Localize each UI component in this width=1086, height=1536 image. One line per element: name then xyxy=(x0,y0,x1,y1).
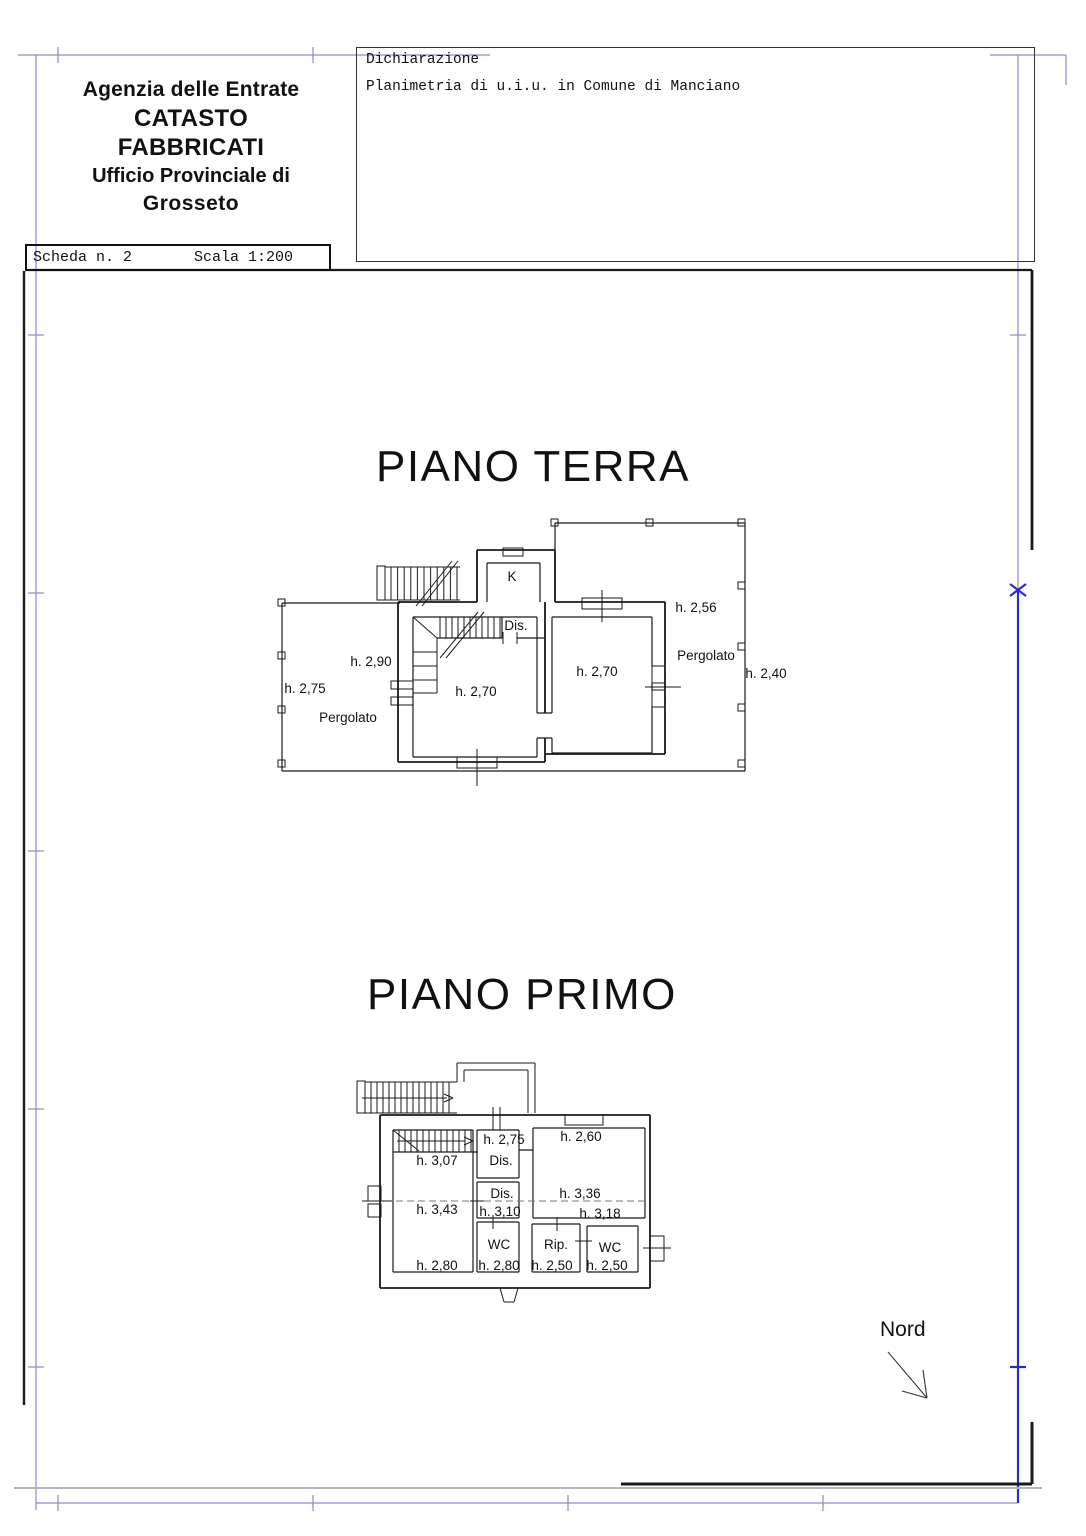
north-label: Nord xyxy=(880,1318,926,1342)
plan-label: h. 2,50 xyxy=(586,1258,627,1273)
plan-label: h. 2,60 xyxy=(560,1129,601,1144)
calibration-frame-strong xyxy=(1010,584,1026,1503)
plan-label: h. 3,07 xyxy=(416,1153,457,1168)
plan-label: h. 2,70 xyxy=(455,684,496,699)
first-interior-stair xyxy=(393,1130,473,1152)
office-header: Agenzia delle Entrate CATASTO FABBRICATI… xyxy=(58,76,324,218)
plan-label: h. 2,40 xyxy=(745,666,786,681)
plan-label: h. 3,10 xyxy=(479,1204,520,1219)
plan-label: Pergolato xyxy=(677,648,735,663)
ground-exterior-stair xyxy=(377,561,460,606)
plan-label: WC xyxy=(599,1240,622,1255)
plan-label: Dis. xyxy=(489,1153,512,1168)
plan-label: h. 2,50 xyxy=(531,1258,572,1273)
plan-label: Dis. xyxy=(490,1186,513,1201)
ground-floor-labels: KDis.h. 2,90h. 2,70h. 2,70h. 2,56Pergola… xyxy=(284,569,786,725)
plan-label: h. 2,80 xyxy=(478,1258,519,1273)
plan-label: h. 3,43 xyxy=(416,1202,457,1217)
sheet-number: Scheda n. 2 xyxy=(33,249,132,266)
sheet-scale: Scala 1:200 xyxy=(194,249,293,266)
plan-label: h. 3,18 xyxy=(579,1206,620,1221)
plan-label: h. 2,70 xyxy=(576,664,617,679)
plan-label: WC xyxy=(488,1237,511,1252)
ground-interior-stair xyxy=(413,612,500,693)
plan-label: h. 2,80 xyxy=(416,1258,457,1273)
province-name: Grosseto xyxy=(58,190,324,218)
sheet-info-box: Scheda n. 2 Scala 1:200 xyxy=(25,244,331,271)
office-line: Ufficio Provinciale di xyxy=(58,162,324,190)
plan-label: Pergolato xyxy=(319,710,377,725)
declaration-title: Dichiarazione xyxy=(366,52,479,68)
first-floor-title: PIANO PRIMO xyxy=(367,970,677,1020)
agency-name: Agenzia delle Entrate xyxy=(58,76,324,104)
plan-label: h. 2,90 xyxy=(350,654,391,669)
ground-inner-walls xyxy=(413,563,652,757)
plan-label: h. 3,36 xyxy=(559,1186,600,1201)
first-exterior-stair xyxy=(357,1063,535,1113)
plan-label: h. 2,75 xyxy=(284,681,325,696)
ground-windows xyxy=(391,548,681,786)
plan-label: h. 2,75 xyxy=(483,1132,524,1147)
plan-label: Rip. xyxy=(544,1237,568,1252)
ground-floor-title: PIANO TERRA xyxy=(376,442,690,492)
catasto-title: CATASTO FABBRICATI xyxy=(58,104,324,162)
north-arrow xyxy=(888,1352,927,1398)
ground-outer-walls xyxy=(398,550,665,762)
pergola-outlines xyxy=(282,523,745,771)
cadastral-sheet-page: KDis.h. 2,90h. 2,70h. 2,70h. 2,56Pergola… xyxy=(0,0,1086,1536)
plan-label: K xyxy=(507,569,516,584)
plan-label: h. 2,56 xyxy=(675,600,716,615)
declaration-box: Dichiarazione Planimetria di u.i.u. in C… xyxy=(356,47,1035,262)
declaration-body: Planimetria di u.i.u. in Comune di Manci… xyxy=(366,79,740,95)
ground-floor-plan xyxy=(278,519,745,786)
plan-label: Dis. xyxy=(504,618,527,633)
